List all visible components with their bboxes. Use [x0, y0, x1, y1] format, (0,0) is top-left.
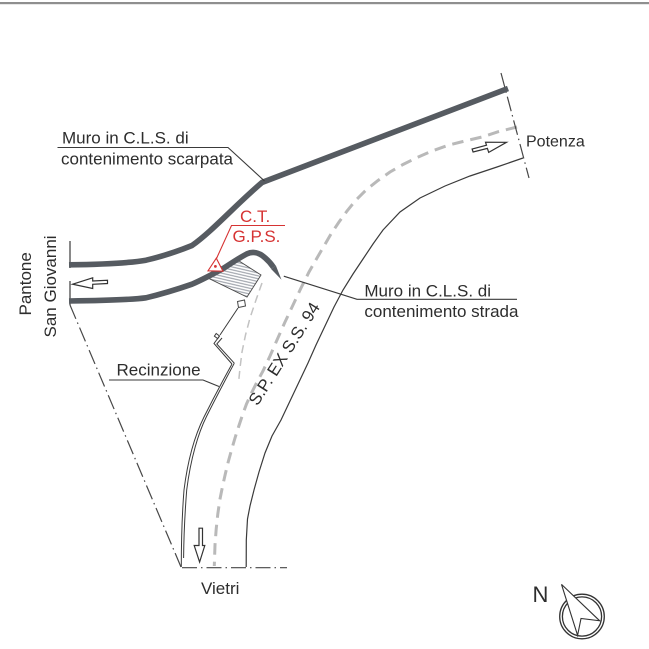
- svg-text:G.P.S.: G.P.S.: [233, 227, 281, 246]
- svg-text:Muro in C.L.S. di: Muro in C.L.S. di: [364, 282, 491, 301]
- svg-text:contenimento scarpata: contenimento scarpata: [61, 150, 234, 169]
- svg-text:contenimento strada: contenimento strada: [364, 302, 519, 321]
- svg-text:Vietri: Vietri: [201, 579, 239, 598]
- svg-text:San Giovanni: San Giovanni: [41, 235, 60, 337]
- svg-text:Recinzione: Recinzione: [117, 361, 201, 380]
- svg-text:N: N: [533, 582, 549, 607]
- svg-text:Muro in C.L.S. di: Muro in C.L.S. di: [62, 129, 189, 148]
- svg-text:C.T.: C.T.: [240, 207, 270, 226]
- svg-text:Pantone: Pantone: [16, 252, 35, 315]
- svg-text:Potenza: Potenza: [526, 134, 585, 151]
